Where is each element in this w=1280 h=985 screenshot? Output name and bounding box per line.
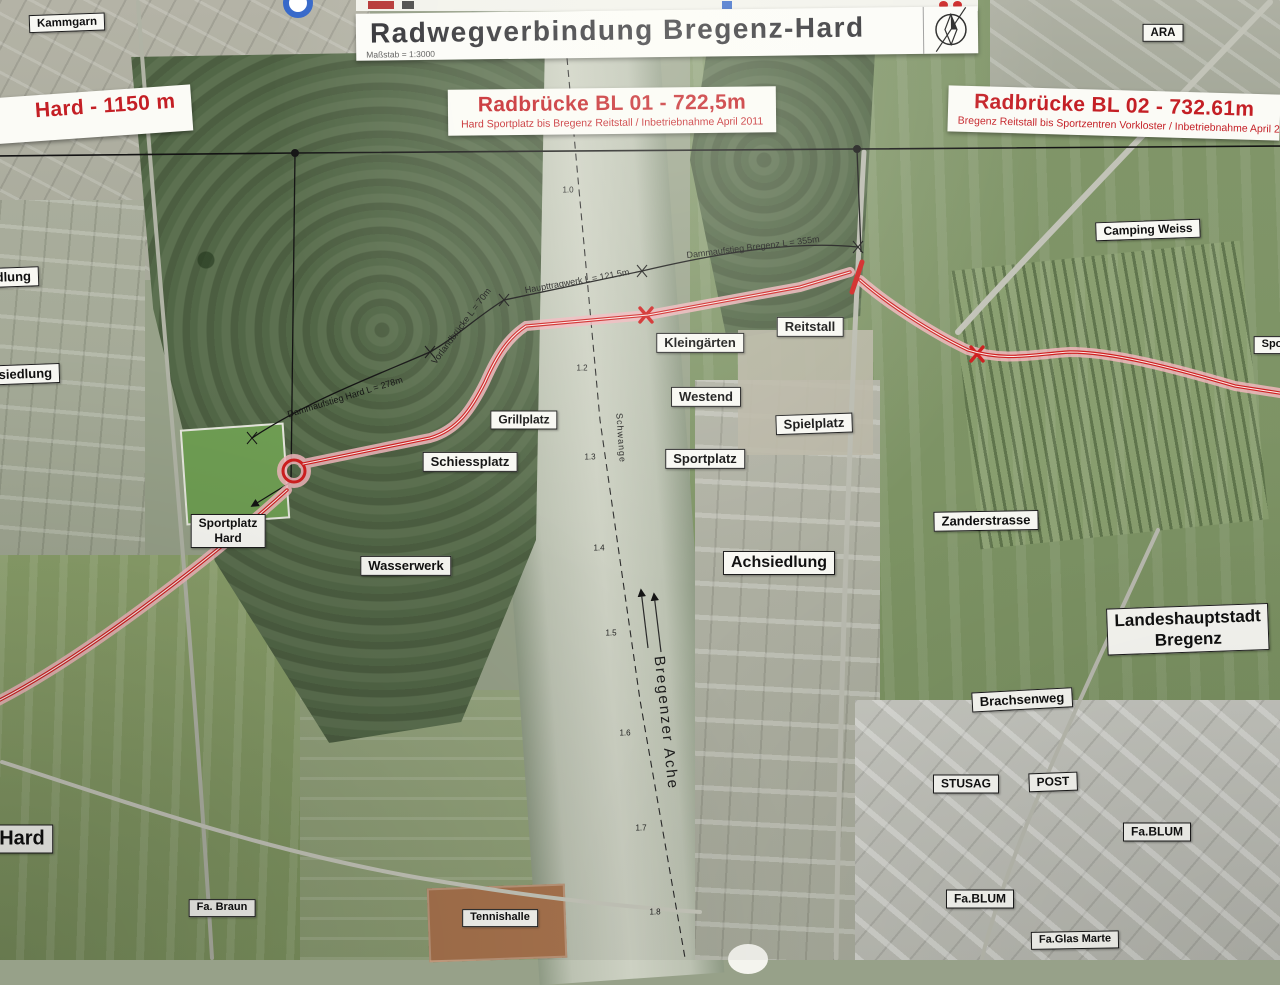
title-bar: Radwegverbindung Bregenz-Hard Maßstab = … xyxy=(356,6,979,61)
north-arrow-icon xyxy=(924,6,977,54)
place-label: Westend xyxy=(671,387,741,407)
place-label: Achsiedlung xyxy=(0,266,39,290)
chainage-marker: 1.8 xyxy=(649,908,660,917)
chainage-marker: 1.6 xyxy=(619,729,630,738)
map-title: Radwegverbindung Bregenz-Hard xyxy=(370,12,865,50)
place-label: Schiessplatz xyxy=(423,452,518,472)
partial-logo xyxy=(368,1,394,9)
place-label: Fa. Braun xyxy=(189,899,256,917)
place-label: Reitstall xyxy=(777,317,844,337)
place-label: Spo xyxy=(1254,336,1280,354)
place-label: Sportplatz xyxy=(665,449,745,469)
chainage-marker: 1.3 xyxy=(584,453,595,462)
place-label: Wasserwerk xyxy=(360,556,451,576)
map-linework xyxy=(0,0,1280,960)
place-label: Werkssiedlung xyxy=(0,363,60,387)
place-label: Camping Weiss xyxy=(1095,219,1201,242)
photo-artifact-blob xyxy=(728,944,768,974)
place-label: Achsiedlung xyxy=(723,551,835,575)
place-label: Grillplatz xyxy=(490,411,557,430)
roads-group xyxy=(2,2,1270,958)
chainage-marker: 1.5 xyxy=(605,629,616,638)
place-label: Kammgarn xyxy=(29,12,106,33)
partial-logo xyxy=(402,1,414,9)
place-label: Tennishalle xyxy=(462,909,538,927)
chainage-marker: 1.0 xyxy=(562,186,573,195)
map-scale: Maßstab = 1:3000 xyxy=(366,49,435,60)
place-label: POST xyxy=(1028,772,1077,793)
info-box-radbruecke-bl02: Radbrücke BL 02 - 732.61m Bregenz Reitst… xyxy=(947,85,1280,140)
place-label: Fa.BLUM xyxy=(1123,823,1191,842)
place-label: Fa.Glas Marte xyxy=(1031,930,1119,949)
place-label: Sportplatz Hard xyxy=(191,514,266,548)
partial-logo xyxy=(722,1,732,9)
survey-baseline xyxy=(0,146,1280,507)
place-label: Kleingärten xyxy=(656,333,744,353)
chainage-marker: 1.7 xyxy=(635,824,646,833)
place-label: STUSAG xyxy=(933,775,999,794)
place-label: Spielplatz xyxy=(775,413,852,436)
place-label: Zanderstrasse xyxy=(933,510,1038,532)
chainage-line xyxy=(567,58,685,958)
info-box-subtitle: Hard Sportplatz bis Bregenz Reitstall / … xyxy=(458,115,766,130)
north-arrow-box xyxy=(923,6,977,54)
info-box-radbruecke-bl01: Radbrücke BL 01 - 722,5m Hard Sportplatz… xyxy=(448,86,776,135)
cycle-route xyxy=(0,262,1280,703)
place-label: Landeshauptstadt Bregenz xyxy=(1106,603,1270,655)
place-label: Hard xyxy=(0,825,53,854)
place-label: ARA xyxy=(1143,24,1184,42)
chainage-marker: 1.4 xyxy=(593,544,604,553)
info-box-title: Radbrücke BL 01 - 722,5m xyxy=(458,90,766,117)
chainage-marker: 1.2 xyxy=(576,364,587,373)
place-label: Fa.BLUM xyxy=(946,890,1014,909)
